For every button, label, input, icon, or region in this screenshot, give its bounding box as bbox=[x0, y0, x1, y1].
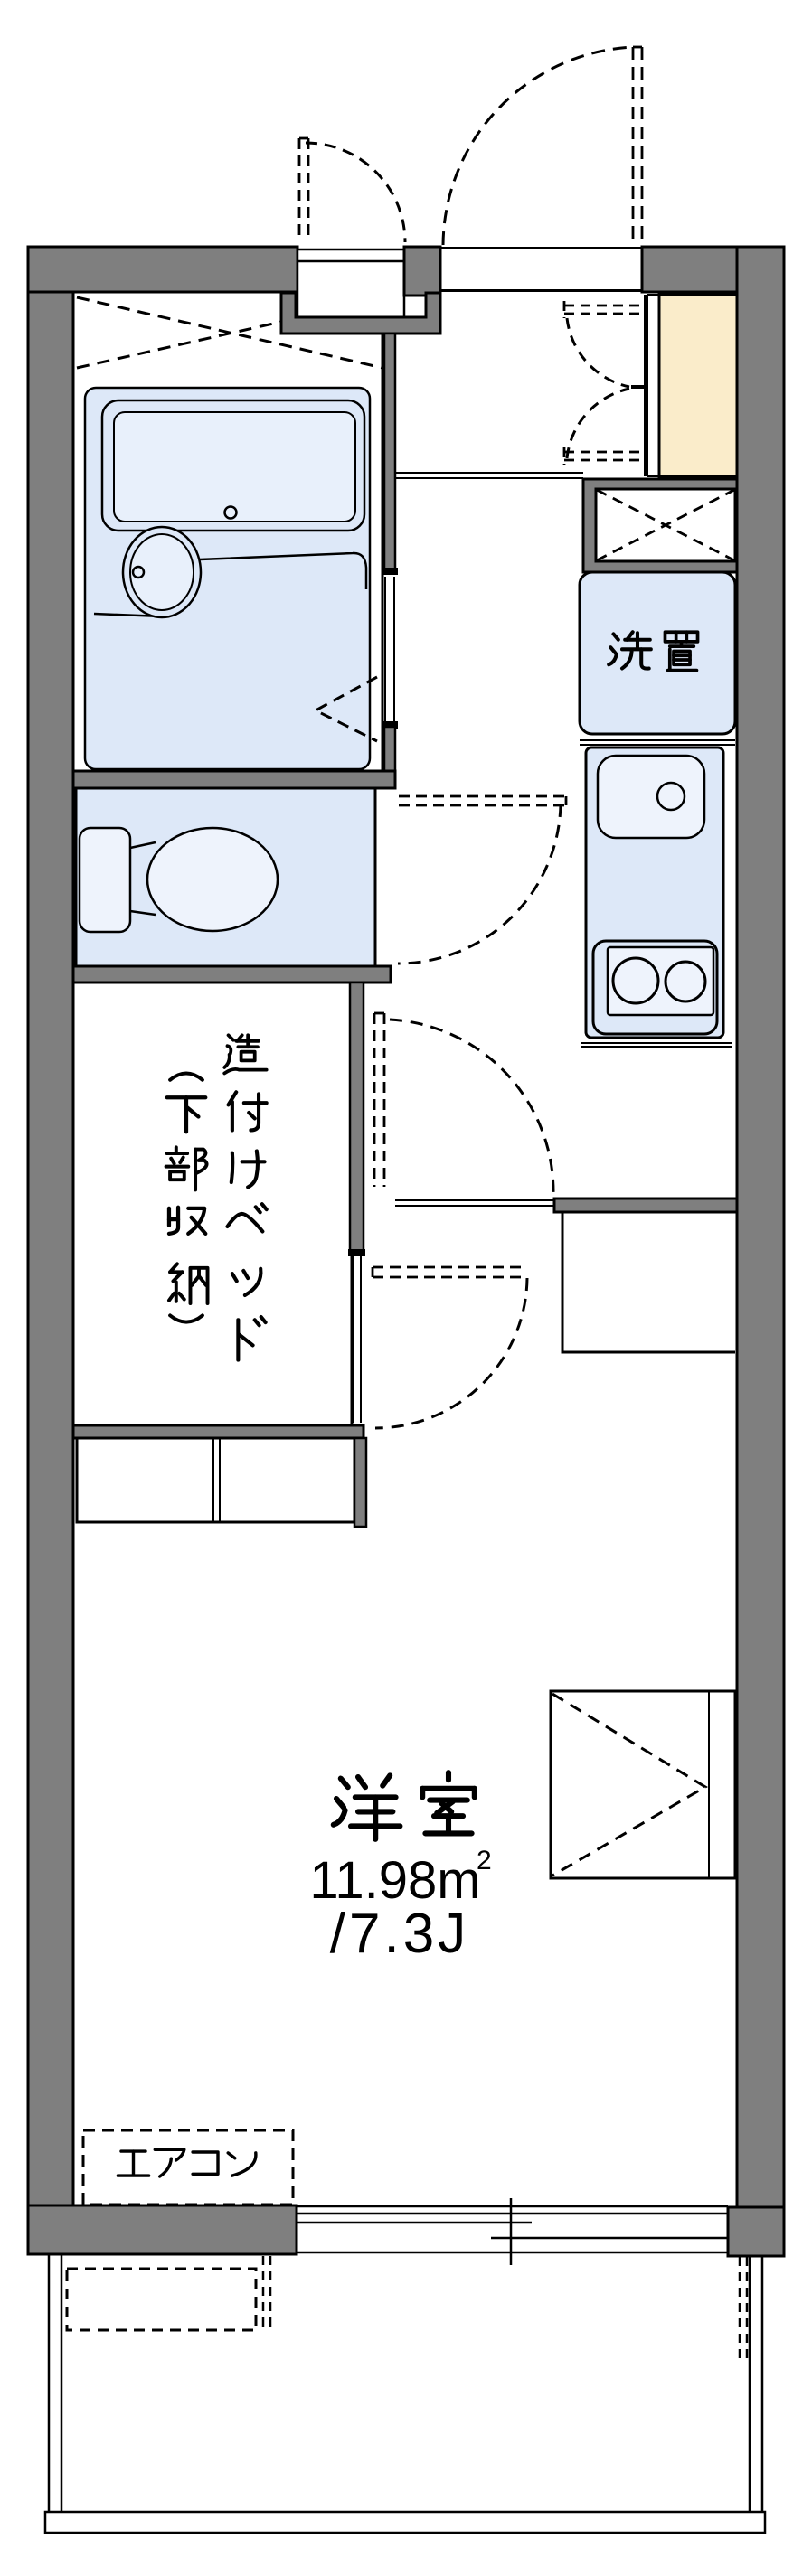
svg-text:/7.3J: /7.3J bbox=[330, 1903, 469, 1965]
svg-text:2: 2 bbox=[477, 1846, 492, 1876]
svg-text:11.98m: 11.98m bbox=[309, 1851, 480, 1910]
